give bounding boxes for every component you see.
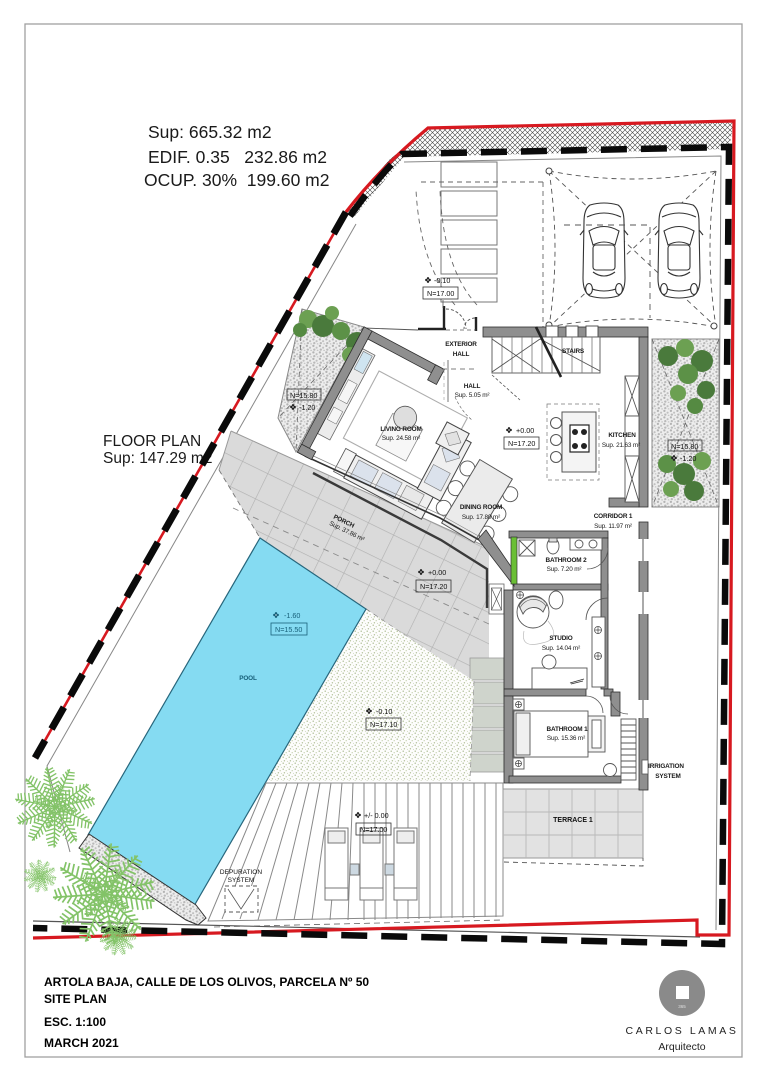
svg-text:ARTOLA BAJA, CALLE DE LOS OLIV: ARTOLA BAJA, CALLE DE LOS OLIVOS, PARCEL… bbox=[44, 975, 369, 989]
svg-text:N=15.80: N=15.80 bbox=[290, 391, 317, 400]
svg-text:-1.20: -1.20 bbox=[299, 403, 315, 412]
svg-text:CORRIDOR 1: CORRIDOR 1 bbox=[594, 513, 633, 520]
svg-text:TERRACE 1: TERRACE 1 bbox=[553, 817, 593, 824]
svg-text:DINING ROOM: DINING ROOM bbox=[460, 504, 502, 511]
svg-text:BATHROOM 1: BATHROOM 1 bbox=[547, 726, 589, 733]
svg-text:SITE PLAN: SITE PLAN bbox=[44, 992, 107, 1006]
svg-text:N=15.50: N=15.50 bbox=[275, 625, 302, 634]
svg-text:STAIRS: STAIRS bbox=[562, 348, 585, 355]
svg-text:Sup. 11.97 m²: Sup. 11.97 m² bbox=[594, 523, 632, 530]
svg-text:Sup. 21.63 m²: Sup. 21.63 m² bbox=[602, 442, 640, 449]
svg-text:EXTERIOR: EXTERIOR bbox=[445, 341, 477, 348]
svg-text:SYSTEM: SYSTEM bbox=[228, 877, 255, 884]
svg-text:FLOOR PLAN: FLOOR PLAN bbox=[103, 433, 201, 450]
svg-text:+0.00: +0.00 bbox=[516, 426, 534, 435]
svg-text:Sup. 17.80 m²: Sup. 17.80 m² bbox=[462, 514, 500, 521]
svg-text:-1.20: -1.20 bbox=[680, 454, 696, 463]
svg-text:N=17.10: N=17.10 bbox=[370, 720, 397, 729]
svg-text:365: 365 bbox=[678, 1004, 686, 1009]
svg-text:HALL: HALL bbox=[464, 383, 481, 390]
svg-text:Sup. 15.36 m²: Sup. 15.36 m² bbox=[547, 735, 585, 742]
svg-text:N=17.20: N=17.20 bbox=[508, 439, 535, 448]
svg-text:POOL: POOL bbox=[239, 675, 257, 682]
svg-text:EDIF. 0.35 232.86 m2: EDIF. 0.35 232.86 m2 bbox=[148, 147, 327, 167]
svg-text:OCUP. 30% 199.60 m2: OCUP. 30% 199.60 m2 bbox=[144, 170, 329, 190]
svg-text:Arquitecto: Arquitecto bbox=[658, 1041, 705, 1053]
svg-text:Sup. 5.05 m²: Sup. 5.05 m² bbox=[455, 392, 490, 399]
svg-text:N=17.00: N=17.00 bbox=[427, 289, 454, 298]
svg-text:STUDIO: STUDIO bbox=[549, 635, 572, 642]
svg-text:KITCHEN: KITCHEN bbox=[608, 432, 636, 439]
svg-text:SYSTEM: SYSTEM bbox=[655, 773, 680, 780]
svg-text:N=17.00: N=17.00 bbox=[360, 825, 387, 834]
svg-text:-0.10: -0.10 bbox=[376, 707, 392, 716]
svg-text:CARLOS LAMAS: CARLOS LAMAS bbox=[626, 1025, 739, 1037]
svg-text:DEPURATION: DEPURATION bbox=[220, 869, 262, 876]
svg-text:MARCH 2021: MARCH 2021 bbox=[44, 1036, 119, 1050]
svg-text:-1.60: -1.60 bbox=[284, 611, 300, 620]
svg-text:+/- 0.00: +/- 0.00 bbox=[364, 811, 389, 820]
svg-text:N=15.80: N=15.80 bbox=[671, 442, 698, 451]
svg-text:IRRIGATION: IRRIGATION bbox=[648, 763, 684, 770]
svg-text:+0.00: +0.00 bbox=[428, 568, 446, 577]
svg-text:BATHROOM 2: BATHROOM 2 bbox=[546, 557, 588, 564]
svg-text:Sup. 7.20 m²: Sup. 7.20 m² bbox=[547, 566, 582, 573]
svg-text:LIVING ROOM: LIVING ROOM bbox=[380, 426, 421, 433]
svg-text:N=17.20: N=17.20 bbox=[420, 582, 447, 591]
svg-text:Sup. 14.04 m²: Sup. 14.04 m² bbox=[542, 645, 580, 652]
svg-text:Sup: 665.32 m2: Sup: 665.32 m2 bbox=[148, 122, 272, 142]
svg-text:ESC. 1:100: ESC. 1:100 bbox=[44, 1015, 106, 1029]
svg-text:-0.10: -0.10 bbox=[434, 276, 450, 285]
svg-text:Sup. 24.58 m²: Sup. 24.58 m² bbox=[382, 435, 420, 442]
svg-text:Sup: 147.29 m2: Sup: 147.29 m2 bbox=[103, 450, 212, 467]
svg-text:HALL: HALL bbox=[453, 351, 470, 358]
